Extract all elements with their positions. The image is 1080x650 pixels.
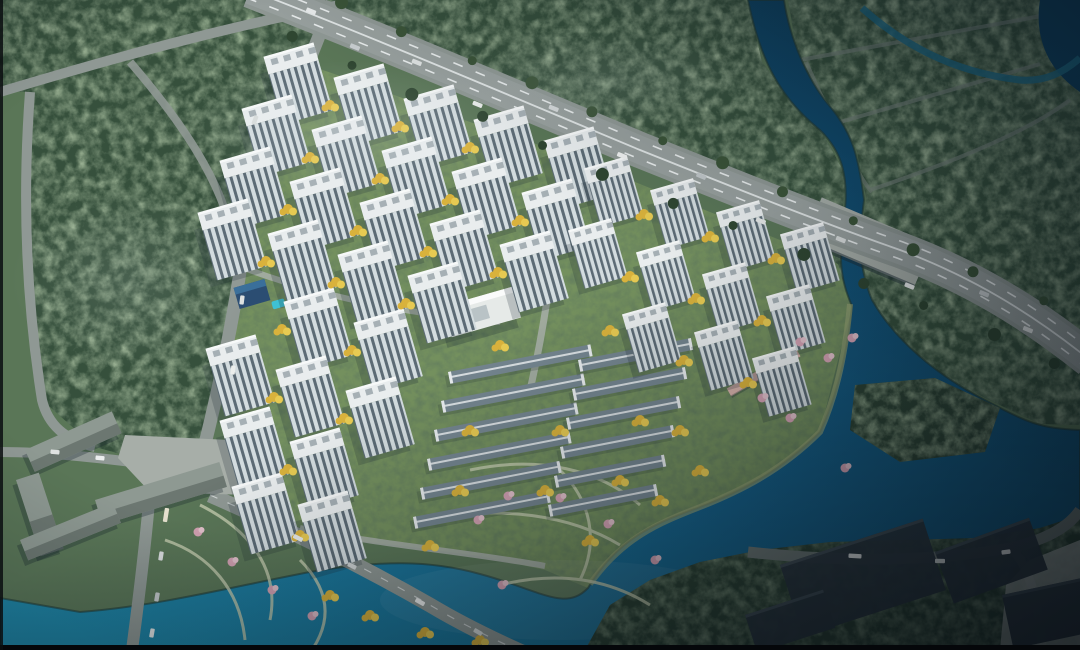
aerial-render-screenshot	[0, 0, 1080, 650]
letterbox-left	[0, 0, 3, 650]
letterbox-bottom	[0, 645, 1080, 650]
scene-canvas	[0, 0, 1080, 650]
vignette-top-right	[0, 0, 1080, 650]
